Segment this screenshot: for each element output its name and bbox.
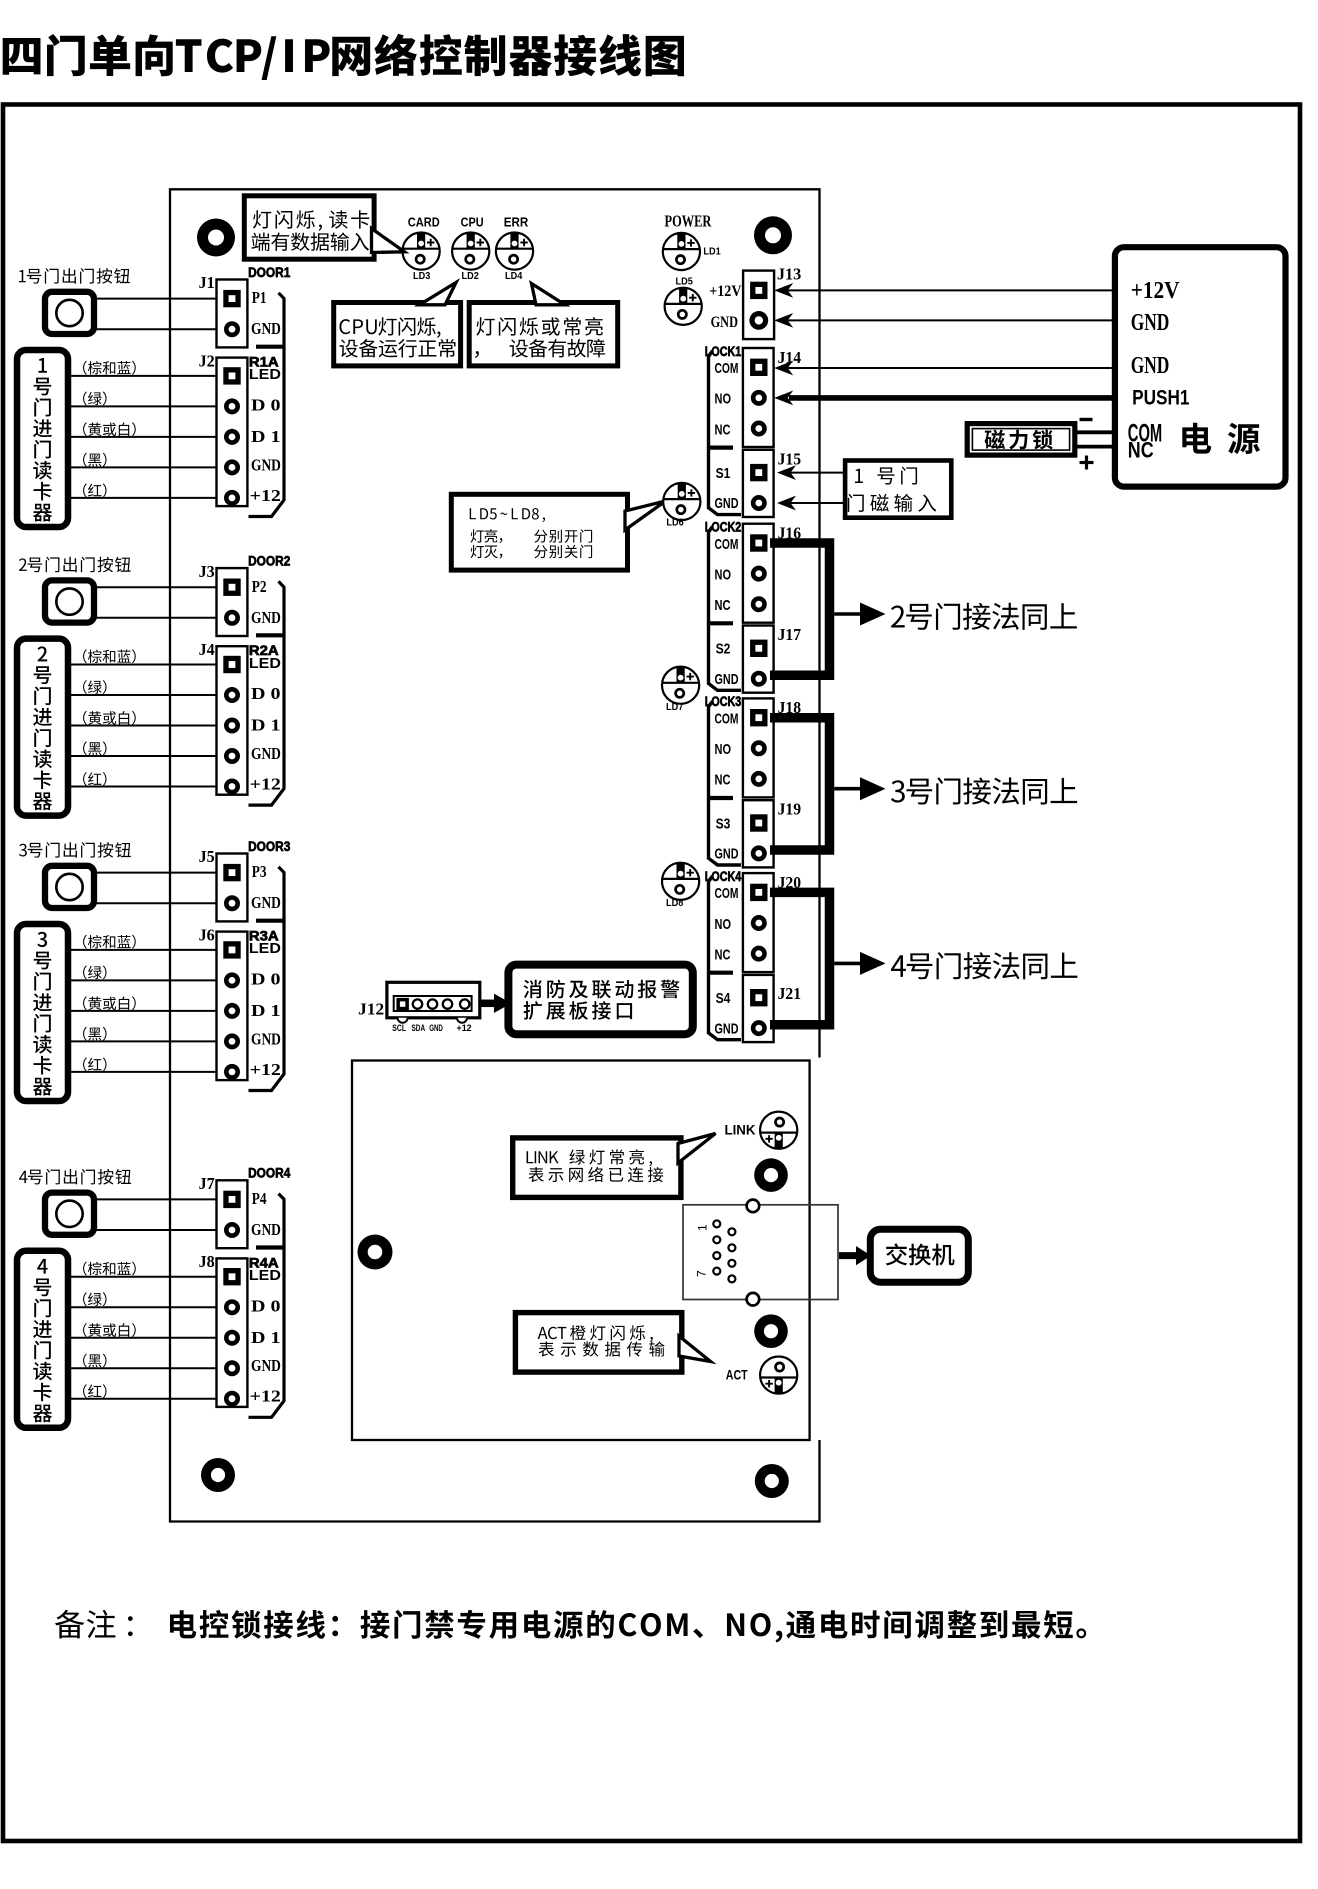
svg-text:LD3: LD3 [413,271,431,282]
svg-text:GND: GND [251,455,281,474]
svg-text:+12: +12 [457,1023,472,1034]
svg-text:GND: GND [251,608,281,627]
svg-text:J21: J21 [778,984,802,1003]
svg-text:GND: GND [715,1020,739,1037]
svg-text:+12: +12 [250,486,281,505]
svg-text:7: 7 [695,1270,709,1277]
svg-text:+12V: +12V [709,283,742,300]
svg-text:J6: J6 [199,925,215,944]
svg-text:GND: GND [711,314,738,331]
svg-text:+12V: +12V [1131,278,1180,304]
svg-text:GND: GND [715,846,739,863]
svg-text:GND: GND [251,744,281,763]
svg-text:D 1: D 1 [251,427,281,446]
svg-text:NC: NC [715,772,731,789]
svg-text:DOOR1: DOOR1 [248,265,291,280]
svg-text:NO: NO [715,566,732,583]
svg-text:NO: NO [715,391,732,408]
svg-text:COM: COM [715,885,739,902]
svg-text:J12: J12 [358,1000,384,1019]
svg-text:SCL: SCL [392,1023,406,1034]
svg-text:SDA: SDA [412,1023,426,1034]
svg-text:J8: J8 [199,1252,215,1271]
svg-text:LD4: LD4 [505,271,523,282]
svg-text:+12: +12 [250,775,281,794]
svg-text:DOOR3: DOOR3 [248,839,291,854]
svg-text:J7: J7 [199,1174,215,1193]
svg-text:DOOR2: DOOR2 [248,553,290,568]
svg-text:NC: NC [715,421,731,438]
svg-text:LOCK3: LOCK3 [705,693,742,709]
svg-text:D 1: D 1 [251,1328,281,1347]
svg-text:LD7: LD7 [666,702,684,713]
svg-text:DOOR4: DOOR4 [248,1166,291,1181]
svg-text:J4: J4 [199,640,215,659]
svg-text:P3: P3 [252,862,267,881]
svg-text:LOCK2: LOCK2 [705,519,742,535]
svg-text:S1: S1 [716,465,731,482]
svg-text:+12: +12 [250,1060,281,1079]
svg-text:J19: J19 [778,800,802,819]
svg-text:NC: NC [715,597,731,614]
svg-text:CARD: CARD [408,214,440,229]
svg-text:LD8: LD8 [666,898,684,909]
svg-text:P4: P4 [252,1189,267,1208]
svg-text:CPU: CPU [461,214,484,229]
svg-text:LD6: LD6 [666,518,684,529]
svg-text:COM: COM [715,360,739,377]
svg-text:ERR: ERR [504,214,529,229]
svg-text:NC: NC [1128,438,1154,463]
svg-text:GND: GND [251,1029,281,1048]
svg-text:D 0: D 0 [251,1296,281,1315]
svg-text:D 0: D 0 [251,970,281,989]
svg-text:D 1: D 1 [251,1001,281,1020]
svg-text:S2: S2 [716,641,731,658]
svg-text:D 0: D 0 [251,396,281,415]
svg-text:J15: J15 [778,449,802,468]
svg-text:LD5: LD5 [676,277,694,288]
svg-text:LOCK1: LOCK1 [705,343,742,359]
svg-text:GND: GND [251,1356,281,1375]
svg-text:J2: J2 [199,351,215,370]
svg-text:GND: GND [1131,310,1170,336]
svg-text:NC: NC [715,946,731,963]
svg-text:LD1: LD1 [703,247,721,258]
svg-text:LED: LED [249,367,281,383]
svg-text:1: 1 [696,1224,710,1231]
svg-text:J13: J13 [777,264,801,283]
svg-text:NO: NO [715,741,732,758]
svg-text:J1: J1 [199,273,215,292]
svg-text:P2: P2 [252,577,267,596]
svg-text:POWER: POWER [665,212,712,231]
svg-text:LD2: LD2 [462,271,480,282]
svg-text:LED: LED [249,941,281,957]
svg-text:GND: GND [429,1023,443,1034]
svg-text:+12: +12 [250,1387,281,1406]
svg-text:COM: COM [715,711,739,728]
svg-text:GND: GND [251,319,281,338]
svg-text:S4: S4 [716,990,731,1007]
svg-text:COM: COM [715,536,739,553]
svg-text:PUSH1: PUSH1 [1132,387,1190,410]
svg-text:GND: GND [715,671,739,688]
svg-text:ACT: ACT [726,1367,748,1383]
svg-text:D 0: D 0 [251,684,281,703]
svg-text:NO: NO [715,916,732,933]
svg-text:LOCK4: LOCK4 [705,868,742,884]
svg-text:GND: GND [251,1220,281,1239]
svg-text:GND: GND [715,495,739,512]
svg-text:P1: P1 [252,288,267,307]
svg-text:LINK: LINK [725,1122,756,1138]
svg-text:GND: GND [1131,353,1170,379]
svg-text:LED: LED [249,656,281,672]
svg-text:J3: J3 [199,562,215,581]
svg-text:J5: J5 [199,847,215,866]
svg-text:LED: LED [249,1268,281,1284]
svg-text:D 1: D 1 [251,716,281,735]
svg-text:J17: J17 [778,625,802,644]
svg-text:GND: GND [251,893,281,912]
svg-text:S3: S3 [716,815,731,832]
